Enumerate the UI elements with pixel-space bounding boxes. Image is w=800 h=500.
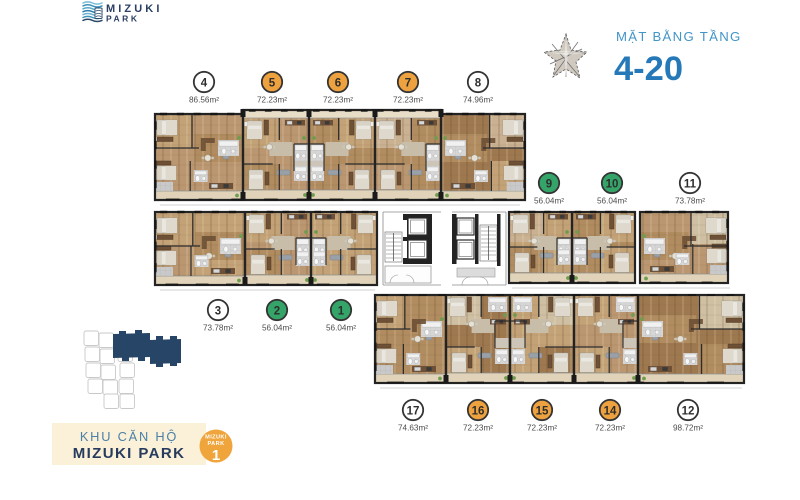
svg-text:MIZUKI PARK: MIZUKI PARK [73, 445, 186, 462]
svg-text:73.78m²: 73.78m² [675, 197, 705, 206]
svg-text:KHU CĂN HỘ: KHU CĂN HỘ [80, 429, 178, 444]
svg-text:72.23m²: 72.23m² [393, 96, 423, 105]
svg-text:17: 17 [407, 405, 420, 417]
svg-text:72.23m²: 72.23m² [257, 96, 287, 105]
svg-text:MẶT BẰNG TẦNG: MẶT BẰNG TẦNG [616, 29, 742, 44]
svg-text:72.23m²: 72.23m² [527, 424, 557, 433]
svg-text:7: 7 [405, 77, 411, 89]
svg-text:12: 12 [682, 405, 695, 417]
svg-text:14: 14 [604, 405, 617, 417]
svg-text:74.63m²: 74.63m² [398, 424, 428, 433]
svg-text:1: 1 [212, 447, 220, 464]
svg-text:PARK: PARK [106, 14, 139, 24]
svg-text:10: 10 [606, 178, 619, 190]
svg-text:56.04m²: 56.04m² [597, 197, 627, 206]
svg-text:9: 9 [546, 178, 552, 190]
svg-text:56.04m²: 56.04m² [534, 197, 564, 206]
svg-text:4: 4 [201, 77, 208, 89]
svg-text:3: 3 [215, 305, 221, 317]
svg-text:72.23m²: 72.23m² [323, 96, 353, 105]
svg-text:72.23m²: 72.23m² [595, 424, 625, 433]
svg-text:56.04m²: 56.04m² [326, 324, 356, 333]
svg-text:6: 6 [335, 77, 341, 89]
svg-text:73.78m²: 73.78m² [203, 324, 233, 333]
svg-text:86.56m²: 86.56m² [189, 96, 219, 105]
svg-text:4-20: 4-20 [614, 50, 683, 88]
svg-text:1: 1 [338, 305, 345, 317]
svg-text:11: 11 [684, 178, 697, 190]
svg-text:8: 8 [475, 77, 482, 89]
svg-text:5: 5 [269, 77, 276, 89]
svg-text:74.96m²: 74.96m² [463, 96, 493, 105]
svg-text:2: 2 [274, 305, 280, 317]
svg-text:72.23m²: 72.23m² [463, 424, 493, 433]
svg-text:MIZUKI: MIZUKI [205, 435, 227, 441]
svg-text:56.04m²: 56.04m² [262, 324, 292, 333]
svg-text:98.72m²: 98.72m² [673, 424, 703, 433]
svg-text:15: 15 [536, 405, 549, 417]
svg-text:16: 16 [472, 405, 485, 417]
